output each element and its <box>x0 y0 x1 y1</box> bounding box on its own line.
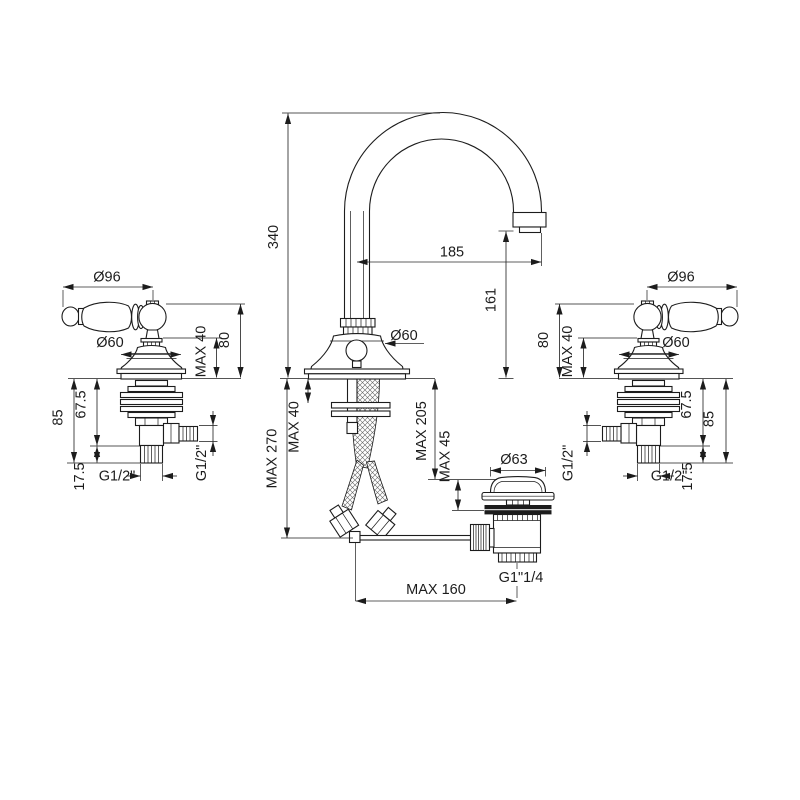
spout-reach-label: 185 <box>440 245 464 261</box>
left-inlet-thread-label: G1/2" <box>99 469 136 485</box>
dim-right-lever-diameter: Ø96 <box>647 270 737 308</box>
left-below-deck-total-label: 85 <box>51 409 67 425</box>
rod-reach-label: MAX 160 <box>406 582 466 598</box>
left-lever-diameter-label: Ø96 <box>93 270 120 286</box>
drain-max-mounting-label: MAX 45 <box>438 431 454 483</box>
left-below-deck-body-label: 67.5 <box>74 390 90 418</box>
dim-left-inlet-thread: G1/2" <box>99 464 177 485</box>
right-outlet-thread-label: G1/2" <box>561 445 577 482</box>
spout <box>305 113 547 380</box>
drain-knurled-knob <box>471 525 495 551</box>
left-height-label: 80 <box>217 332 233 348</box>
dim-spout-outlet-height: 161 <box>484 231 514 378</box>
dim-spout-base-diameter: Ø60 <box>385 328 424 344</box>
dim-rod-reach: MAX 160 <box>356 543 517 602</box>
right-base-diameter-label: Ø60 <box>662 335 689 351</box>
left-handle-valve <box>62 301 198 463</box>
right-below-deck-total-label: 85 <box>702 411 718 427</box>
technical-drawing-sheet: 340 185 161 Ø60 MAX 40 MAX 270 MAX 205 M… <box>0 0 800 800</box>
right-height-label: 80 <box>536 332 552 348</box>
dim-left-outlet-thread: G1/2" <box>194 411 218 481</box>
dim-rod-drop: MAX 205 <box>414 379 497 480</box>
dim-drain-max-mounting: MAX 45 <box>438 431 485 511</box>
right-max-mounting-label: MAX 40 <box>560 326 576 378</box>
left-outlet-thread-label: G1/2" <box>194 445 210 482</box>
left-max-mounting-label: MAX 40 <box>194 326 210 378</box>
dim-drain-cap-diameter: Ø63 <box>491 452 546 477</box>
right-handle-valve <box>603 301 739 463</box>
drain-cap-diameter-label: Ø63 <box>500 452 527 468</box>
left-base-diameter-label: Ø60 <box>96 335 123 351</box>
dim-spout-max-mounting: MAX 40 <box>287 379 309 453</box>
dim-spout-reach: 185 <box>357 233 542 266</box>
faucet-dimension-drawing: 340 185 161 Ø60 MAX 40 MAX 270 MAX 205 M… <box>0 0 800 800</box>
right-inlet-thread-label: G1/2" <box>651 469 688 485</box>
pop-up-drain <box>471 477 555 562</box>
left-inlet-thread-length-label: 17.5 <box>72 462 88 490</box>
drain-thread-label: G1"1/4 <box>499 570 544 586</box>
spout-height-label: 340 <box>266 225 282 249</box>
dim-left-lever-diameter: Ø96 <box>63 270 153 308</box>
right-below-deck-body-label: 67.5 <box>679 390 695 418</box>
spout-nozzle <box>513 213 546 233</box>
right-lever-diameter-label: Ø96 <box>667 270 694 286</box>
hose-nut-right <box>366 504 401 540</box>
rod-drop-label: MAX 205 <box>414 401 430 461</box>
spout-base-diameter-label: Ø60 <box>390 328 417 344</box>
dim-right-outlet-thread: G1/2" <box>561 411 602 481</box>
dim-right-inlet-thread: G1/2" <box>623 464 687 485</box>
dim-drain-thread: G1"1/4 <box>499 563 544 598</box>
hose-drop-label: MAX 270 <box>265 429 281 489</box>
spout-max-mounting-label: MAX 40 <box>287 401 303 453</box>
spout-outlet-height-label: 161 <box>484 288 500 312</box>
